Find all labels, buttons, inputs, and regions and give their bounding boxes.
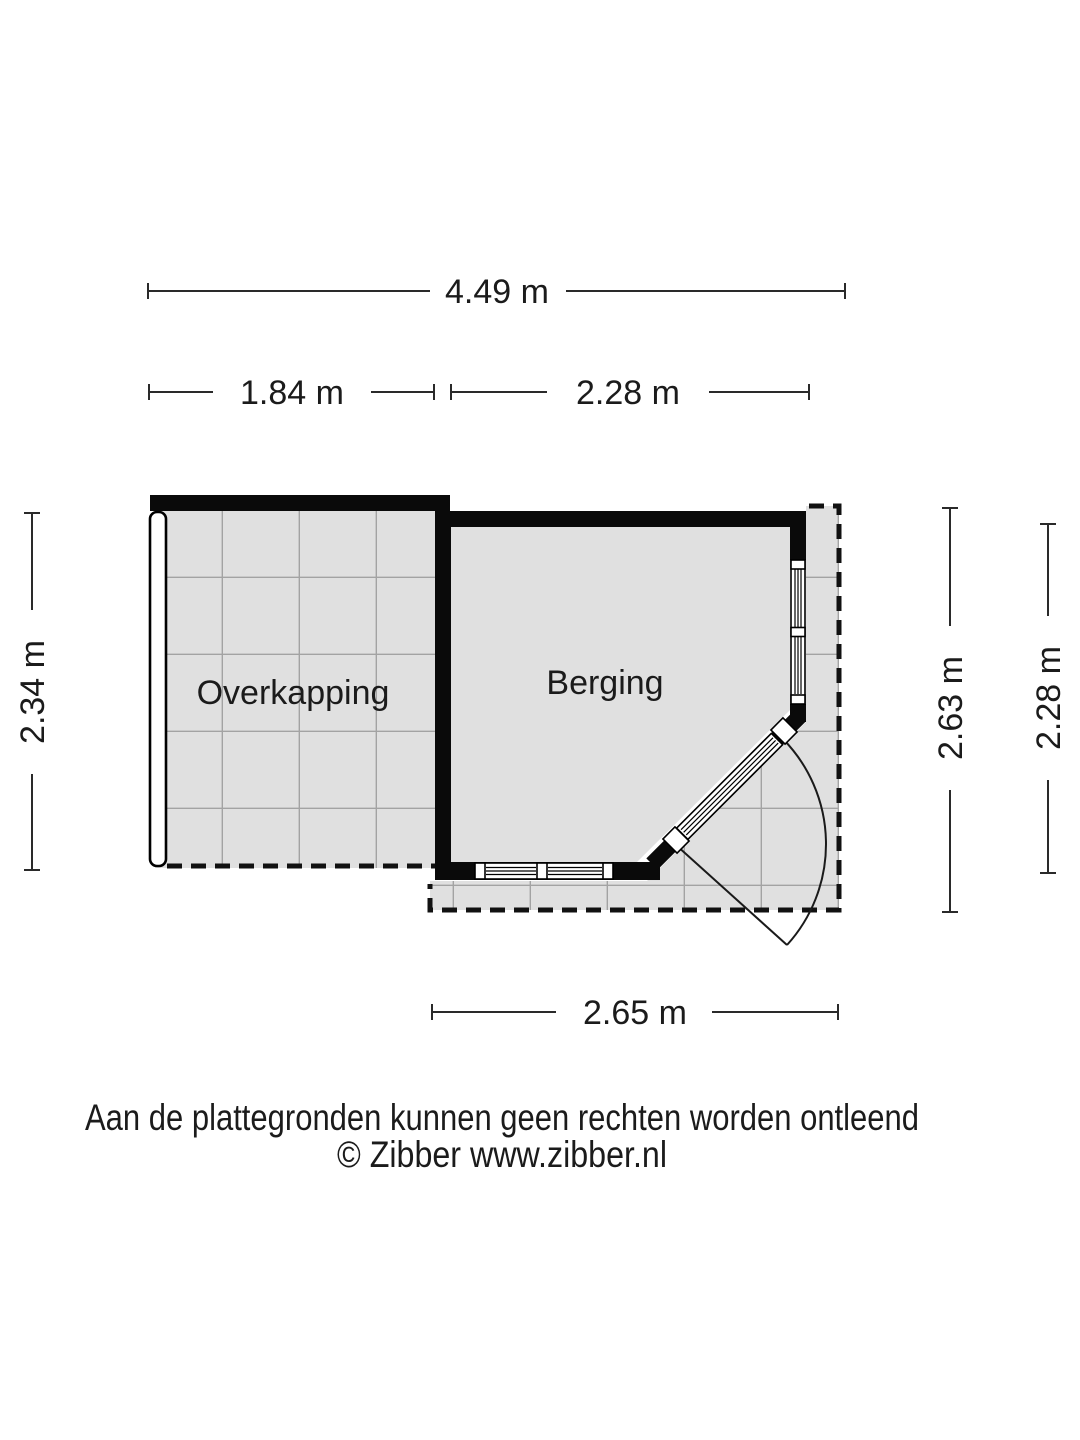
room-label-overkapping: Overkapping (197, 674, 390, 712)
overkapping-open-side-post (150, 512, 166, 866)
dimension-total-width: 4.49 m (148, 273, 845, 311)
dimension-label-berging-height-inner: 2.28 m (1030, 646, 1068, 750)
dimension-overkapping-height: 2.34 m (14, 513, 52, 870)
dimension-label-overkapping-width: 1.84 m (240, 374, 344, 412)
disclaimer-text: Aan de plattegronden kunnen geen rechten… (85, 1097, 919, 1138)
window-bottom (475, 863, 613, 879)
window-right (791, 560, 805, 704)
floorplan-page: Overkapping Berging 4.49 m 1.84 m 2.28 m… (0, 0, 1080, 1440)
dimension-berging-height-inner: 2.28 m (1030, 524, 1068, 873)
room-label-berging: Berging (546, 664, 663, 702)
dimension-label-berging-width-bottom: 2.65 m (583, 994, 687, 1032)
credit-text: © Zibber www.zibber.nl (337, 1134, 667, 1175)
dimension-label-berging-width-top: 2.28 m (576, 374, 680, 412)
dimension-label-overkapping-height: 2.34 m (14, 640, 52, 744)
shared-left-wall (435, 511, 451, 880)
floorplan-canvas: Overkapping Berging 4.49 m 1.84 m 2.28 m… (0, 0, 1080, 1440)
dimension-berging-width-top: 2.28 m (451, 374, 809, 412)
dimension-label-total-width: 4.49 m (445, 273, 549, 311)
dimension-berging-width-bottom: 2.65 m (432, 994, 838, 1032)
dimension-label-berging-height-outer: 2.63 m (932, 656, 970, 760)
dimension-berging-height-outer: 2.63 m (932, 508, 970, 912)
dimension-overkapping-width: 1.84 m (149, 374, 434, 412)
berging-right-wall-upper (790, 511, 806, 560)
overkapping-top-wall (150, 495, 450, 511)
berging-top-wall (435, 511, 806, 527)
